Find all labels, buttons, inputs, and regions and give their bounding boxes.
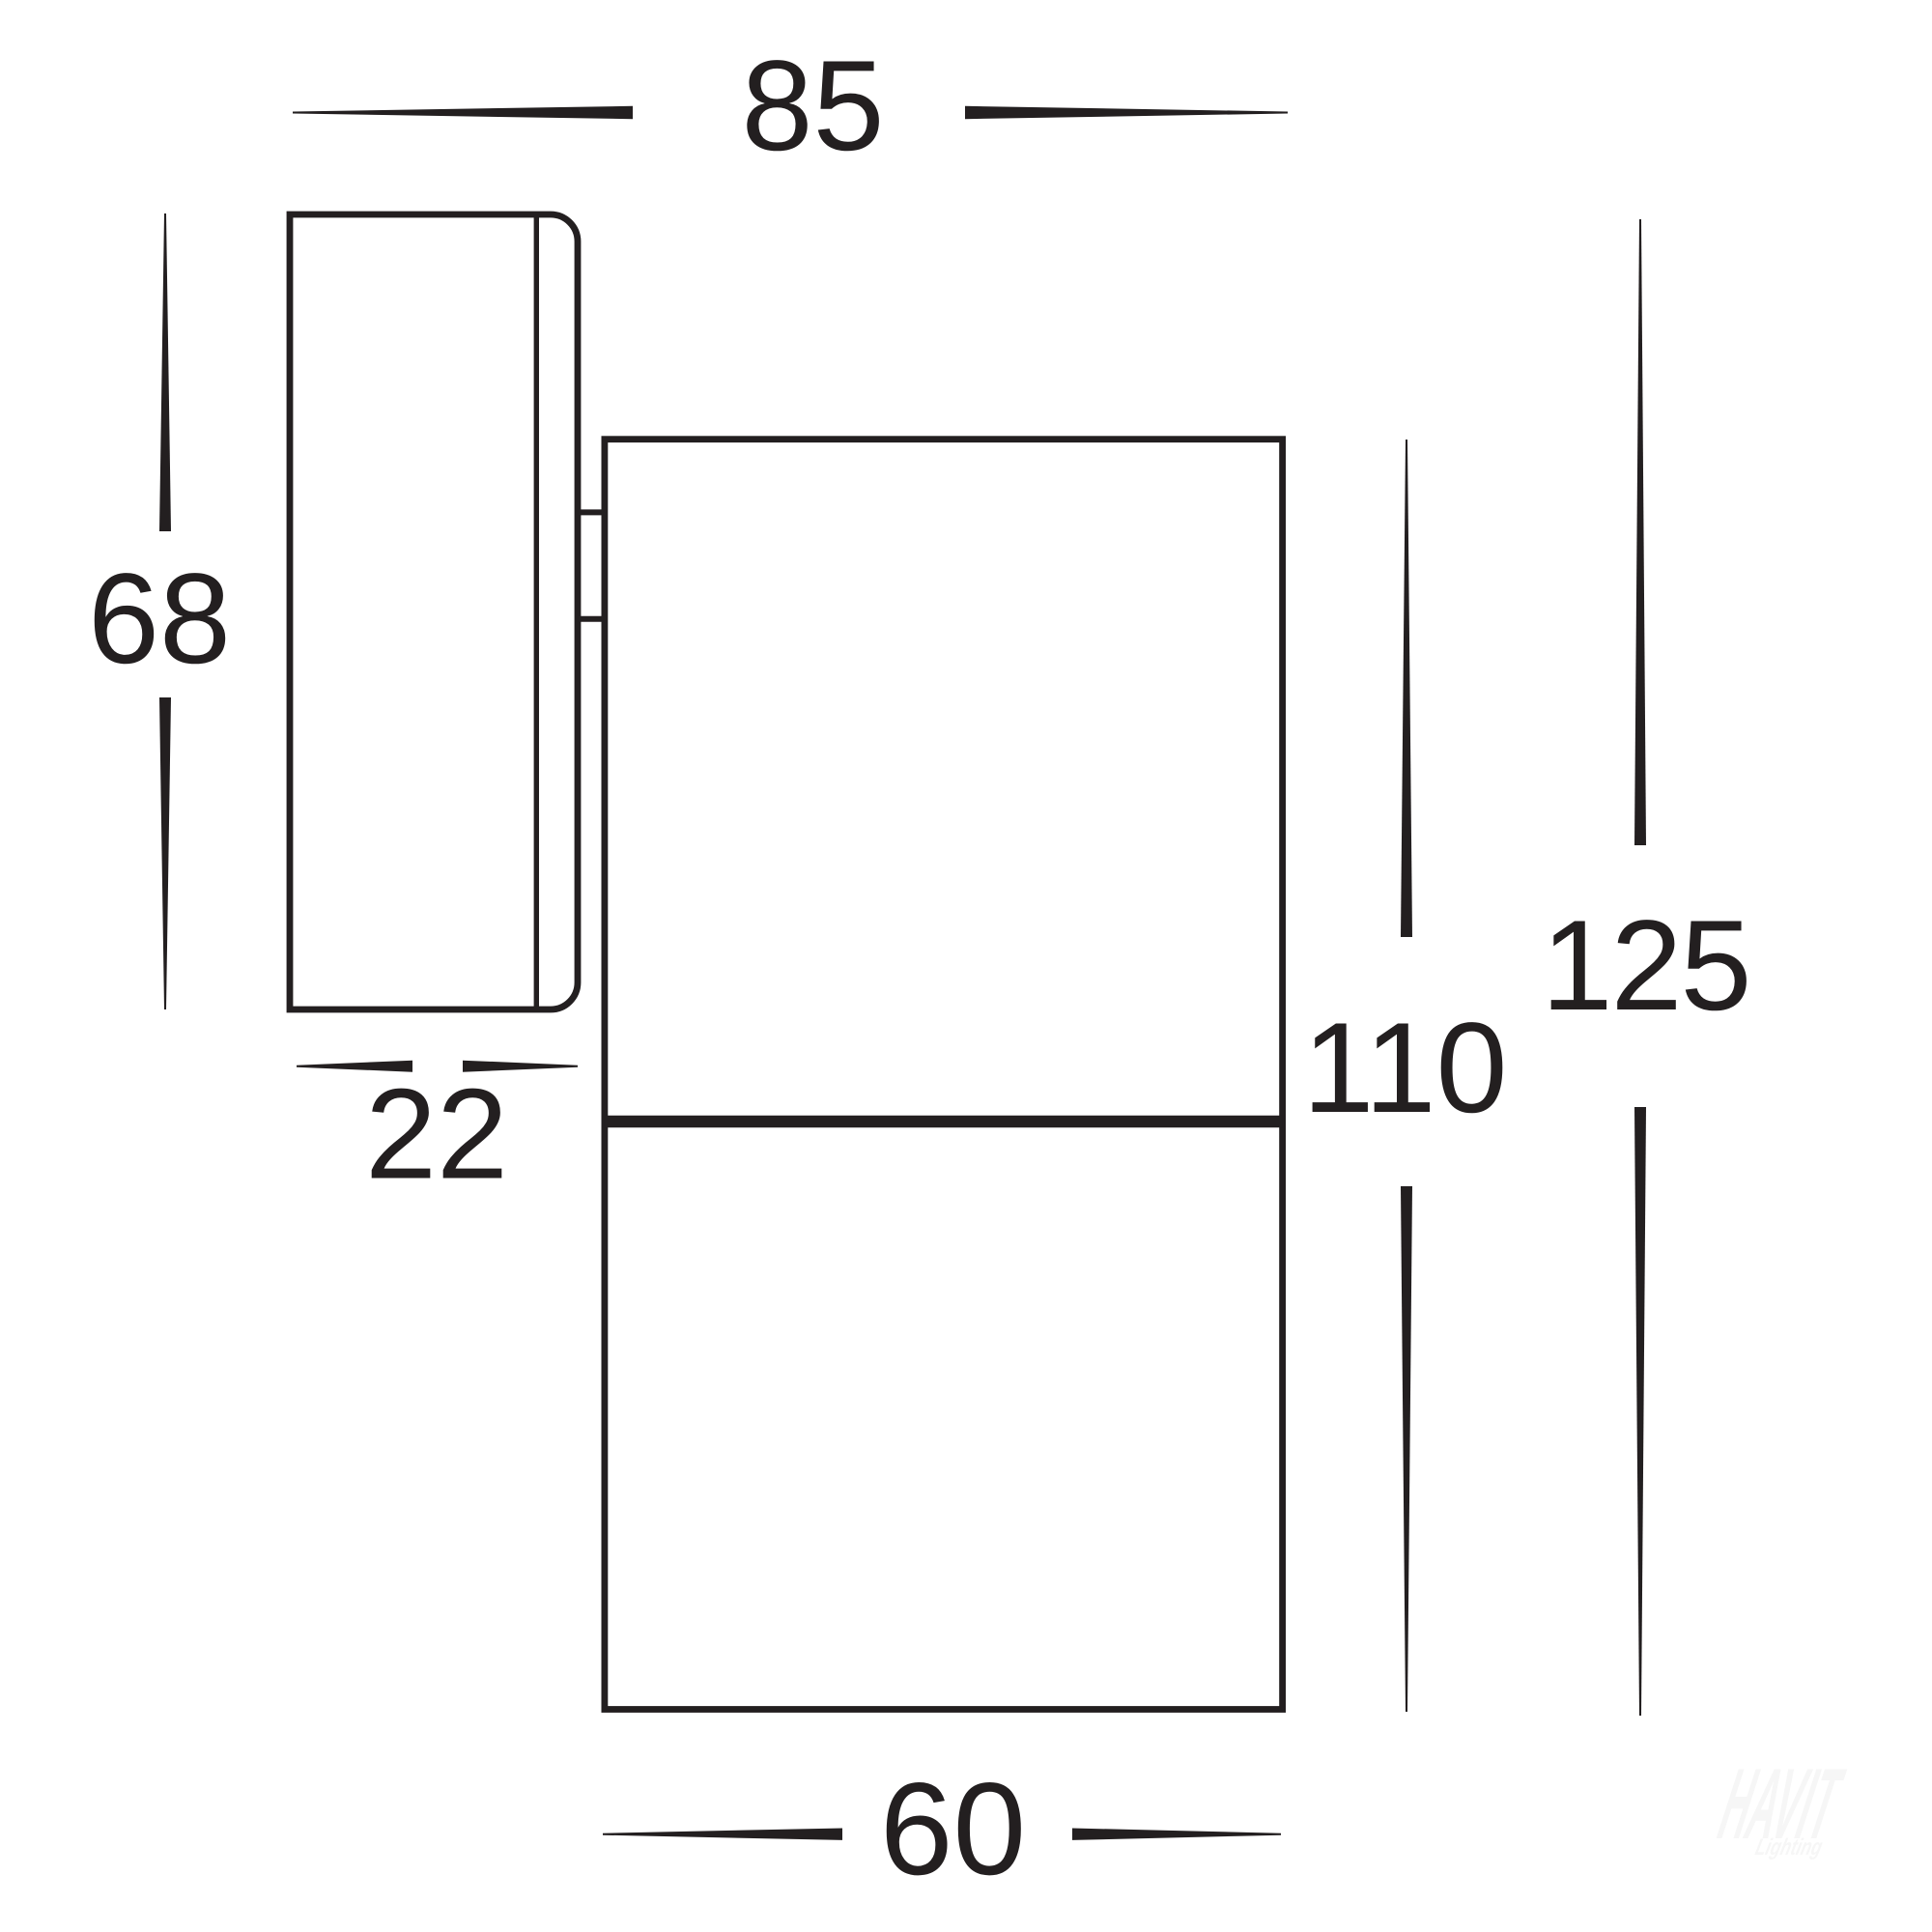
svg-text:Lighting: Lighting	[1753, 1834, 1826, 1861]
svg-text:85: 85	[742, 35, 885, 178]
svg-text:60: 60	[880, 1755, 1026, 1902]
svg-text:125: 125	[1542, 895, 1750, 1037]
svg-text:22: 22	[365, 1064, 508, 1207]
svg-text:68: 68	[88, 548, 231, 691]
svg-text:110: 110	[1302, 997, 1507, 1140]
